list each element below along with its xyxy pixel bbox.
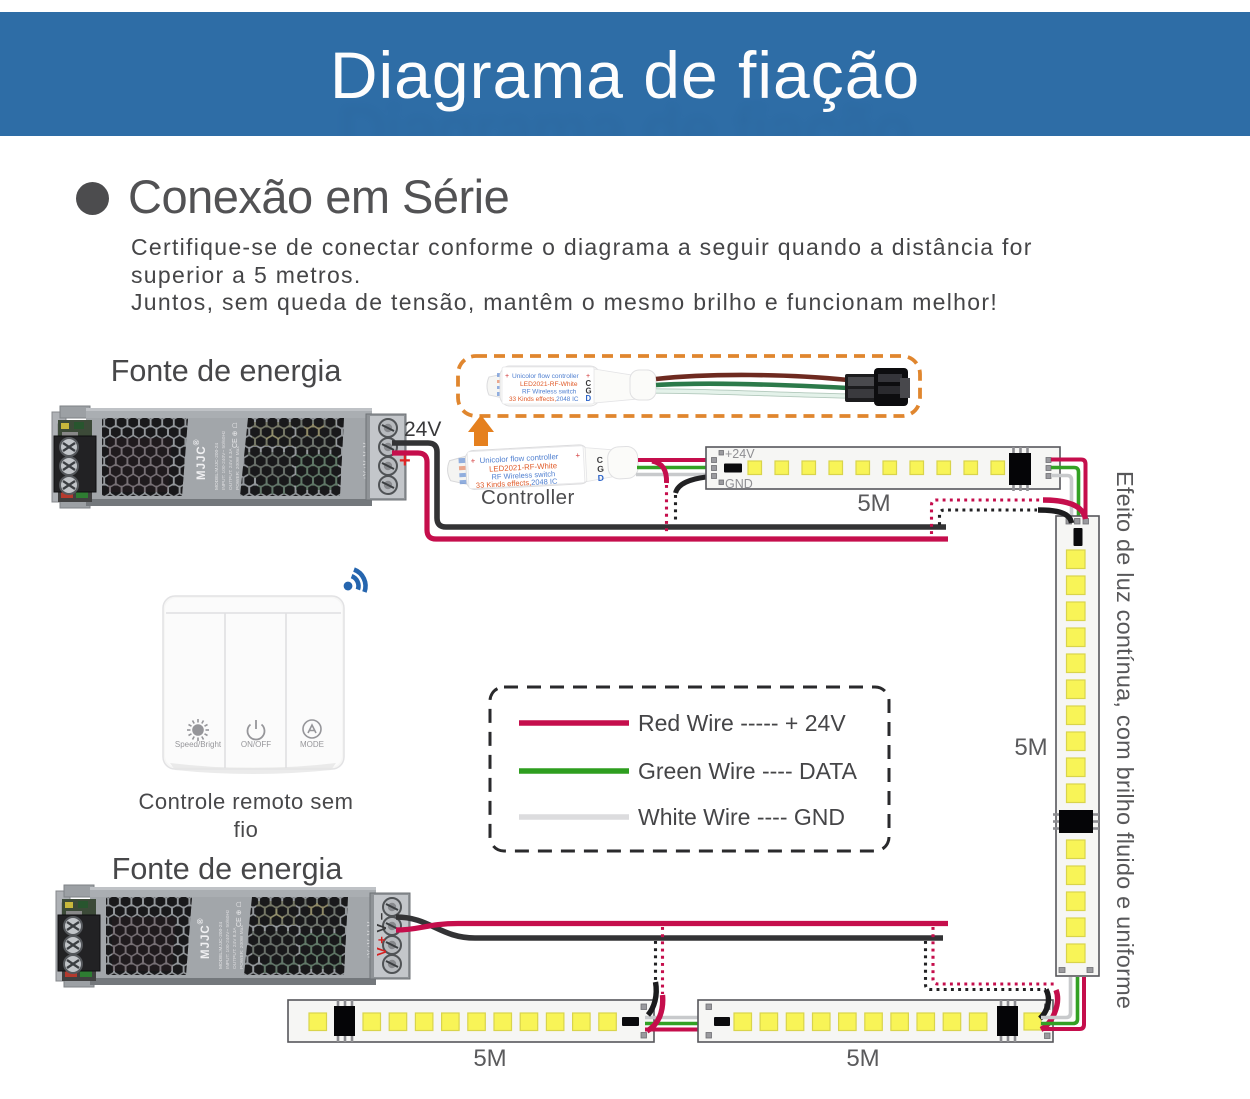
svg-text:Controller: Controller	[481, 486, 575, 509]
svg-text:RF Wireless switch: RF Wireless switch	[522, 389, 577, 396]
svg-text:MODE: MODE	[300, 740, 324, 749]
svg-text:ON/OFF: ON/OFF	[241, 740, 271, 749]
svg-text:5M: 5M	[1014, 734, 1047, 761]
svg-text:Fonte de energia: Fonte de energia	[111, 354, 342, 388]
svg-text:D: D	[597, 473, 604, 483]
svg-text:Speed/Bright: Speed/Bright	[175, 740, 222, 749]
svg-text:Controle remoto sem: Controle remoto sem	[139, 789, 354, 814]
svg-text:D: D	[586, 394, 592, 403]
svg-text:5M: 5M	[857, 490, 890, 517]
svg-text:GND: GND	[725, 477, 753, 491]
svg-text:White Wire ---- GND: White Wire ---- GND	[638, 804, 845, 830]
svg-text:24V: 24V	[404, 418, 441, 441]
svg-text:+: +	[470, 456, 475, 465]
svg-text:fio: fio	[234, 817, 259, 842]
svg-text:+: +	[575, 451, 580, 460]
svg-text:Green Wire ---- DATA: Green Wire ---- DATA	[638, 758, 858, 784]
svg-text:V + V −: V + V −	[374, 912, 389, 956]
svg-text:LED2021-RF-White: LED2021-RF-White	[520, 381, 578, 388]
svg-text:5M: 5M	[846, 1045, 879, 1072]
svg-text:+: +	[505, 373, 509, 380]
svg-text:5M: 5M	[473, 1045, 506, 1072]
svg-text:Efeito de luz contínua, com br: Efeito de luz contínua, com brilho fluid…	[1112, 471, 1138, 1009]
svg-text:Fonte de energia: Fonte de energia	[112, 852, 343, 886]
svg-text:Unicolor flow controller: Unicolor flow controller	[512, 373, 579, 380]
svg-text:Red Wire ----- + 24V: Red Wire ----- + 24V	[638, 710, 846, 736]
svg-text:+24V: +24V	[725, 447, 755, 461]
svg-text:33 Kinds effects,2048 IC: 33 Kinds effects,2048 IC	[509, 396, 579, 403]
